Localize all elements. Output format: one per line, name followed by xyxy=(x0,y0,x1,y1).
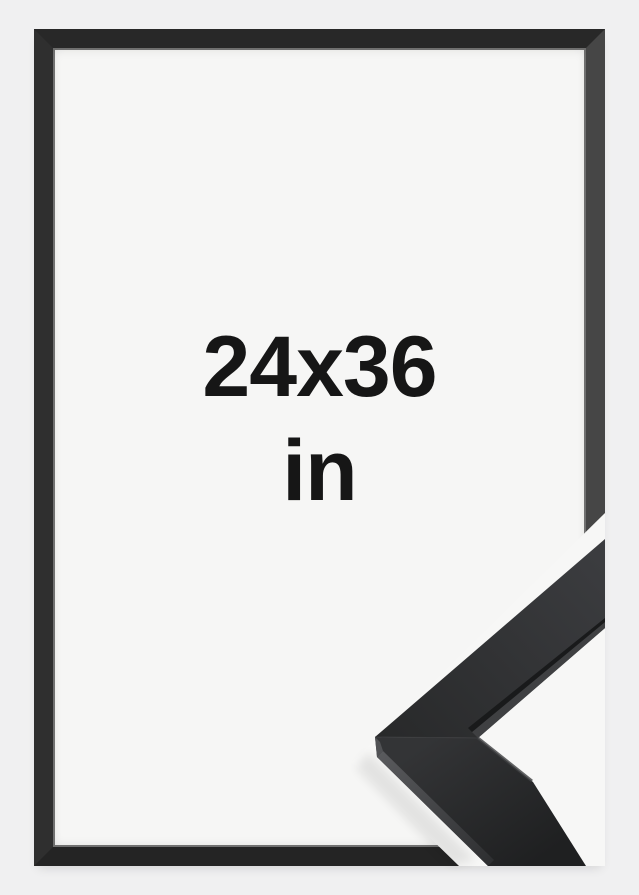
size-label: 24x36 in xyxy=(53,324,586,514)
frame-inner-shadow xyxy=(53,48,586,847)
size-dimensions-text: 24x36 xyxy=(53,324,586,410)
product-image: 24x36 in xyxy=(0,0,639,895)
size-unit-text: in xyxy=(53,428,586,514)
picture-frame: 24x36 in xyxy=(34,29,605,866)
